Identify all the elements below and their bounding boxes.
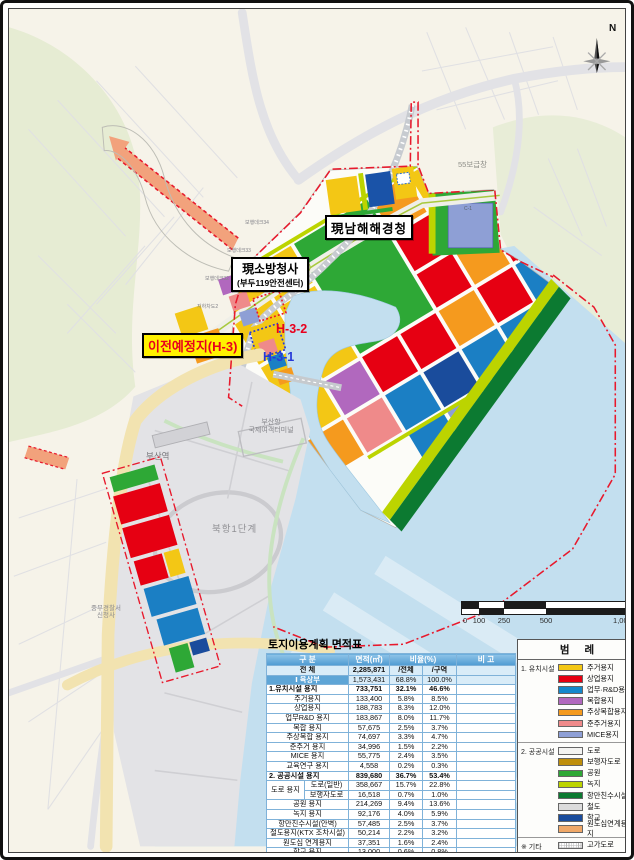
table-cell: 53.4% bbox=[423, 771, 457, 781]
legend-label: 고가도로 bbox=[587, 840, 626, 850]
table-row: 상업용지188,7838.3%12.0% bbox=[267, 704, 516, 714]
legend-swatch bbox=[558, 697, 583, 705]
table-cell: 8.5% bbox=[423, 694, 457, 704]
table-header-row: 구 분 면적(㎡) 비율(%) 비 고 bbox=[267, 654, 516, 666]
legend-item: 항만친수시설 bbox=[558, 790, 626, 801]
table-cell bbox=[457, 666, 516, 676]
plan-map-frame: N 55보급창 C-1 보행데크34 보행데크33 보행데크32 지하차도2 부… bbox=[0, 0, 634, 860]
table-cell: 46.6% bbox=[423, 685, 457, 695]
legend-item: 준주거용지 bbox=[558, 718, 626, 729]
legend-body: 1. 유치시설주거용지상업용지업무·R&D용지복합용지주상복합용지준주거용지MI… bbox=[518, 660, 626, 853]
table-row: 원도심 연계용지37,3511.6%2.4% bbox=[267, 838, 516, 848]
table-cell: 2.2% bbox=[390, 829, 423, 839]
table-row: 도로 용지도로(일반)358,66715.7%22.8% bbox=[267, 781, 516, 791]
table-cell bbox=[457, 742, 516, 752]
table-cell bbox=[457, 819, 516, 829]
table-cell: 36.7% bbox=[390, 771, 423, 781]
table-cell: 92,176 bbox=[349, 809, 390, 819]
h3-2-label: H-3-2 bbox=[276, 322, 307, 336]
legend-section-name: 1. 유치시설 bbox=[521, 662, 558, 740]
legend-swatch bbox=[558, 709, 583, 717]
depot-label: 55보급창 bbox=[458, 161, 487, 169]
col-header-area: 면적(㎡) bbox=[349, 654, 390, 666]
table-cell: 3.7% bbox=[423, 723, 457, 733]
h3-1-label: H-3-1 bbox=[263, 350, 294, 364]
legend-swatch bbox=[558, 758, 583, 766]
table-cell: 15.7% bbox=[390, 781, 423, 791]
table-cell: 준주거 용지 bbox=[267, 742, 349, 752]
table-cell bbox=[457, 713, 516, 723]
table-cell: 133,400 bbox=[349, 694, 390, 704]
table-row: 2. 공공시설 용지839,68036.7%53.4% bbox=[267, 771, 516, 781]
legend-label: 공원 bbox=[587, 768, 626, 778]
deck-label: 보행데크32 bbox=[205, 277, 229, 283]
legend-item: 주상복합용지 bbox=[558, 707, 626, 718]
table-cell: 도로(일반) bbox=[305, 781, 349, 791]
table-cell: 3.2% bbox=[423, 829, 457, 839]
legend-label: 복합용지 bbox=[587, 696, 626, 706]
table-title: 토지이용계획 면적표 bbox=[268, 636, 515, 652]
legend-label: 녹지 bbox=[587, 779, 626, 789]
legend-section: 1. 유치시설주거용지상업용지업무·R&D용지복합용지주상복합용지준주거용지MI… bbox=[518, 660, 626, 743]
table-row: 학교 용지13,0000.6%0.8% bbox=[267, 848, 516, 853]
table-cell: 3.7% bbox=[423, 819, 457, 829]
terminal-label: 부산항 국제여객터미널 bbox=[235, 419, 307, 434]
table-cell: 녹지 용지 bbox=[267, 809, 349, 819]
legend-item: 공원 bbox=[558, 768, 626, 779]
table-row: Ⅰ 육상부1,573,43168.8%100.0% bbox=[267, 675, 516, 685]
table-cell: 2.2% bbox=[423, 742, 457, 752]
table-row: 항만친수시설(안벽)57,4852.5%3.7% bbox=[267, 819, 516, 829]
table-cell: 2.4% bbox=[423, 838, 457, 848]
col-header-category: 구 분 bbox=[267, 654, 349, 666]
legend-label: 보행자도로 bbox=[587, 757, 626, 767]
land-use-table-panel: 토지이용계획 면적표 구 분 면적(㎡) 비율(%) 비 고 전 체2,285,… bbox=[266, 636, 515, 853]
legend-swatch bbox=[558, 664, 583, 672]
table-cell bbox=[457, 761, 516, 771]
table-cell: /전체 bbox=[390, 666, 423, 676]
table-row: 1.유치시설 용지733,75132.1%46.6% bbox=[267, 685, 516, 695]
legend-item: 도로 bbox=[558, 745, 626, 756]
table-cell: 4.0% bbox=[390, 809, 423, 819]
table-cell: 16,518 bbox=[349, 790, 390, 800]
deck-label: 보행데크34 bbox=[245, 221, 269, 227]
table-cell: 32.1% bbox=[390, 685, 423, 695]
table-cell: 5.8% bbox=[390, 694, 423, 704]
table-cell: 358,667 bbox=[349, 781, 390, 791]
legend-section-name: ※ 기타 bbox=[521, 840, 558, 853]
table-cell: 0.7% bbox=[390, 790, 423, 800]
fire-hq-line2: (부두119안전센터) bbox=[237, 277, 303, 289]
relocation-site-callout: 이전예정지(H-3) bbox=[142, 333, 243, 358]
parcel-code-label: C-1 bbox=[464, 207, 472, 213]
table-cell: 상업용지 bbox=[267, 704, 349, 714]
legend-swatch bbox=[558, 720, 583, 728]
table-cell: 1.5% bbox=[390, 742, 423, 752]
legend-swatch bbox=[558, 781, 583, 789]
table-cell bbox=[457, 838, 516, 848]
scale-tick: 1,000 bbox=[613, 616, 626, 625]
table-row: 철도용지(KTX 조차시설)50,2142.2%3.2% bbox=[267, 829, 516, 839]
table-cell: 0.3% bbox=[423, 761, 457, 771]
table-cell: 2.5% bbox=[390, 723, 423, 733]
busan-station-label: 부산역 bbox=[146, 452, 169, 461]
legend-label: 항만친수시설 bbox=[587, 791, 626, 801]
table-cell: 주상복합 용지 bbox=[267, 733, 349, 743]
table-cell: 2.4% bbox=[390, 752, 423, 762]
table-cell bbox=[457, 675, 516, 685]
legend-section-name: 2. 공공시설 bbox=[521, 745, 558, 835]
legend-swatch bbox=[558, 842, 583, 850]
col-header-ratio: 비율(%) bbox=[390, 654, 457, 666]
table-cell: 1,573,431 bbox=[349, 675, 390, 685]
legend-label: 원도심연계용지 bbox=[587, 819, 626, 839]
area-table-head: 구 분 면적(㎡) 비율(%) 비 고 bbox=[267, 654, 516, 666]
table-cell: 도로 용지 bbox=[267, 781, 305, 800]
underpass-label: 지하차도2 bbox=[197, 305, 218, 311]
table-cell bbox=[457, 771, 516, 781]
table-cell: 공원 용지 bbox=[267, 800, 349, 810]
legend-label: 지하도로 bbox=[587, 852, 626, 853]
legend-label: 도로 bbox=[587, 746, 626, 756]
table-cell: 전 체 bbox=[267, 666, 349, 676]
police-label-line2: 신청사 bbox=[83, 612, 129, 619]
terminal-label-line1: 부산항 bbox=[235, 419, 307, 427]
table-cell: 22.8% bbox=[423, 781, 457, 791]
table-cell: 37,351 bbox=[349, 838, 390, 848]
legend-swatch bbox=[558, 675, 583, 683]
legend-swatch bbox=[558, 770, 583, 778]
table-cell bbox=[457, 733, 516, 743]
legend-swatch bbox=[558, 731, 583, 739]
table-cell: 13,000 bbox=[349, 848, 390, 853]
table-cell bbox=[457, 752, 516, 762]
legend-label: 철도 bbox=[587, 802, 626, 812]
legend-swatch bbox=[558, 686, 583, 694]
table-cell: 항만친수시설(안벽) bbox=[267, 819, 349, 829]
legend-item: 지하도로 bbox=[558, 851, 626, 853]
legend-label: 준주거용지 bbox=[587, 719, 626, 729]
table-cell: 100.0% bbox=[423, 675, 457, 685]
deck-label: 보행데크33 bbox=[227, 249, 251, 255]
table-row: 주거용지133,4005.8%8.5% bbox=[267, 694, 516, 704]
table-cell: 1.0% bbox=[423, 790, 457, 800]
table-cell bbox=[457, 781, 516, 791]
coast-guard-callout: 現남해해경청 bbox=[325, 215, 413, 240]
table-row: 복합 용지57,6752.5%3.7% bbox=[267, 723, 516, 733]
area-table: 구 분 면적(㎡) 비율(%) 비 고 전 체2,285,871/전체/구역Ⅰ … bbox=[266, 653, 516, 853]
legend-swatch bbox=[558, 825, 583, 833]
fire-hq-line1: 現소방청사 bbox=[237, 260, 303, 277]
table-cell: 74,697 bbox=[349, 733, 390, 743]
legend-items: 도로보행자도로공원녹지항만친수시설철도학교원도심연계용지 bbox=[558, 745, 626, 835]
table-cell: 2.5% bbox=[390, 819, 423, 829]
table-cell: 34,996 bbox=[349, 742, 390, 752]
legend-item: 복합용지 bbox=[558, 696, 626, 707]
table-cell: 8.0% bbox=[390, 713, 423, 723]
legend-item: MICE용지 bbox=[558, 729, 626, 740]
table-cell: 57,485 bbox=[349, 819, 390, 829]
table-cell bbox=[457, 848, 516, 853]
table-cell: 12.0% bbox=[423, 704, 457, 714]
legend-label: 주거용지 bbox=[587, 663, 626, 673]
table-cell bbox=[457, 694, 516, 704]
legend-items: 주거용지상업용지업무·R&D용지복합용지주상복합용지준주거용지MICE용지 bbox=[558, 662, 626, 740]
table-cell: 철도용지(KTX 조차시설) bbox=[267, 829, 349, 839]
scale-bar-row-top bbox=[461, 601, 626, 609]
table-cell: 2. 공공시설 용지 bbox=[267, 771, 349, 781]
legend-swatch bbox=[558, 814, 583, 822]
legend-title: 범 례 bbox=[518, 640, 626, 660]
table-row: 보행자도로16,5180.7%1.0% bbox=[267, 790, 516, 800]
table-cell: 복합 용지 bbox=[267, 723, 349, 733]
table-cell: 11.7% bbox=[423, 713, 457, 723]
table-cell: 0.2% bbox=[390, 761, 423, 771]
scale-tick: 500 bbox=[540, 616, 553, 625]
table-cell: 183,867 bbox=[349, 713, 390, 723]
north-label: N bbox=[609, 23, 616, 34]
table-row: 준주거 용지34,9961.5%2.2% bbox=[267, 742, 516, 752]
table-cell bbox=[457, 829, 516, 839]
table-cell: 0.8% bbox=[423, 848, 457, 853]
legend-item: 고가도로 bbox=[558, 840, 626, 851]
table-cell: 8.3% bbox=[390, 704, 423, 714]
legend-swatch bbox=[558, 747, 583, 755]
table-cell bbox=[457, 800, 516, 810]
table-row: MICE 용지55,7752.4%3.5% bbox=[267, 752, 516, 762]
table-cell: 733,751 bbox=[349, 685, 390, 695]
table-cell: 보행자도로 bbox=[305, 790, 349, 800]
table-cell: 1.유치시설 용지 bbox=[267, 685, 349, 695]
table-cell: 4.7% bbox=[423, 733, 457, 743]
table-cell: 2,285,871 bbox=[349, 666, 390, 676]
fire-hq-callout: 現소방청사 (부두119안전센터) bbox=[231, 257, 309, 292]
area-table-body: 전 체2,285,871/전체/구역Ⅰ 육상부1,573,43168.8%100… bbox=[267, 666, 516, 854]
police-label: 중부경찰서 신청사 bbox=[83, 605, 129, 619]
scale-tick: 100 bbox=[473, 616, 486, 625]
table-cell: 9.4% bbox=[390, 800, 423, 810]
legend-label: 상업용지 bbox=[587, 674, 626, 684]
legend-section: 2. 공공시설도로보행자도로공원녹지항만친수시설철도학교원도심연계용지 bbox=[518, 743, 626, 838]
table-cell bbox=[457, 723, 516, 733]
table-row: 녹지 용지92,1764.0%5.9% bbox=[267, 809, 516, 819]
table-cell bbox=[457, 704, 516, 714]
table-cell: 68.8% bbox=[390, 675, 423, 685]
table-cell: 업무R&D 용지 bbox=[267, 713, 349, 723]
legend-section: ※ 기타고가도로지하도로보행데크 bbox=[518, 838, 626, 853]
table-row: 업무R&D 용지183,8678.0%11.7% bbox=[267, 713, 516, 723]
table-cell: 학교 용지 bbox=[267, 848, 349, 853]
scale-tick: 0 bbox=[463, 616, 467, 625]
table-cell: MICE 용지 bbox=[267, 752, 349, 762]
legend-label: 주상복합용지 bbox=[587, 707, 626, 717]
table-cell: 188,783 bbox=[349, 704, 390, 714]
table-cell bbox=[457, 685, 516, 695]
table-cell: 55,775 bbox=[349, 752, 390, 762]
table-cell: 3.5% bbox=[423, 752, 457, 762]
scale-bar-ticks: 0 100 250 500 1,000 bbox=[461, 615, 626, 625]
legend-items: 고가도로지하도로보행데크 bbox=[558, 840, 626, 853]
table-cell: 57,675 bbox=[349, 723, 390, 733]
table-cell: /구역 bbox=[423, 666, 457, 676]
legend-swatch bbox=[558, 803, 583, 811]
table-cell: 3.3% bbox=[390, 733, 423, 743]
legend-item: 상업용지 bbox=[558, 673, 626, 684]
col-header-note: 비 고 bbox=[457, 654, 516, 666]
table-cell: 214,269 bbox=[349, 800, 390, 810]
table-cell: 1.6% bbox=[390, 838, 423, 848]
legend-label: 업무·R&D용지 bbox=[587, 685, 626, 695]
legend-item: 철도 bbox=[558, 801, 626, 812]
table-cell: 원도심 연계용지 bbox=[267, 838, 349, 848]
table-cell: 0.6% bbox=[390, 848, 423, 853]
legend-item: 주거용지 bbox=[558, 662, 626, 673]
table-cell: 교육연구 용지 bbox=[267, 761, 349, 771]
table-row: 공원 용지214,2699.4%13.6% bbox=[267, 800, 516, 810]
table-cell: 주거용지 bbox=[267, 694, 349, 704]
legend-item: 보행자도로 bbox=[558, 757, 626, 768]
table-cell: 13.6% bbox=[423, 800, 457, 810]
map-canvas: N 55보급창 C-1 보행데크34 보행데크33 보행데크32 지하차도2 부… bbox=[8, 8, 626, 853]
legend-label: MICE용지 bbox=[587, 730, 626, 740]
table-cell: 839,680 bbox=[349, 771, 390, 781]
table-cell bbox=[457, 809, 516, 819]
table-cell: 50,214 bbox=[349, 829, 390, 839]
table-row: 전 체2,285,871/전체/구역 bbox=[267, 666, 516, 676]
scale-bar: 0 100 250 500 1,000 bbox=[461, 601, 626, 625]
legend-swatch bbox=[558, 792, 583, 800]
legend-box: 범 례 1. 유치시설주거용지상업용지업무·R&D용지복합용지주상복합용지준주거… bbox=[517, 639, 626, 853]
legend-item: 원도심연계용지 bbox=[558, 824, 626, 835]
north-port-label: 북항1단계 bbox=[212, 525, 257, 535]
table-cell bbox=[457, 790, 516, 800]
table-row: 교육연구 용지4,5580.2%0.3% bbox=[267, 761, 516, 771]
table-row: 주상복합 용지74,6973.3%4.7% bbox=[267, 733, 516, 743]
terminal-label-line2: 국제여객터미널 bbox=[235, 427, 307, 435]
table-cell: 5.9% bbox=[423, 809, 457, 819]
table-cell: Ⅰ 육상부 bbox=[267, 675, 349, 685]
legend-item: 업무·R&D용지 bbox=[558, 684, 626, 695]
table-cell: 4,558 bbox=[349, 761, 390, 771]
scale-tick: 250 bbox=[498, 616, 511, 625]
legend-item: 녹지 bbox=[558, 779, 626, 790]
